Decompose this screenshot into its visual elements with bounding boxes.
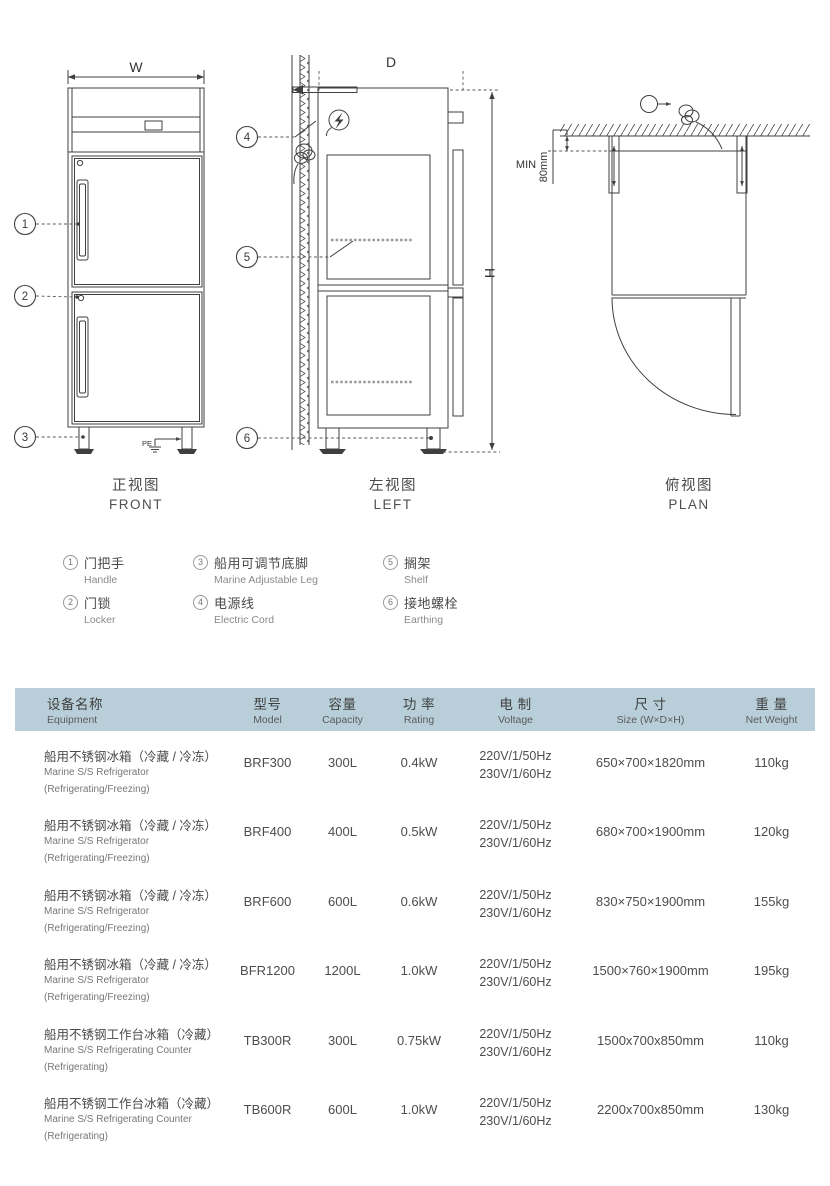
equipment-name-zh: 船用不锈钢工作台冰箱（冷藏） bbox=[44, 1024, 230, 1043]
col-rating-zh: 功 率 bbox=[380, 693, 458, 713]
svg-text:1: 1 bbox=[22, 219, 28, 231]
capacity-cell: 1200L bbox=[305, 954, 380, 1017]
rating-cell: 1.0kW bbox=[380, 1093, 458, 1156]
legend-label-zh: 搁架 bbox=[404, 553, 431, 572]
voltage-cell: 220V/1/50Hz 230V/1/60Hz bbox=[458, 1024, 573, 1087]
capacity-cell: 400L bbox=[305, 815, 380, 878]
model-cell: TB600R bbox=[230, 1093, 305, 1156]
voltage-line-1: 220V/1/50Hz bbox=[458, 1025, 573, 1043]
left-title-zh: 左视图 bbox=[369, 477, 417, 494]
plan-title-zh: 俯视图 bbox=[665, 477, 713, 494]
voltage-line-1: 220V/1/50Hz bbox=[458, 886, 573, 904]
equipment-cell: 船用不锈钢冰箱（冷藏 / 冷冻） Marine S/S Refrigerator… bbox=[15, 815, 230, 878]
door-handle-upper bbox=[77, 180, 88, 260]
legend-label-en: Locker bbox=[84, 614, 116, 626]
col-model: 型号 Model bbox=[230, 693, 305, 726]
col-rating-en: Rating bbox=[380, 714, 458, 726]
rating-cell: 0.4kW bbox=[380, 746, 458, 809]
adjustable-leg bbox=[326, 428, 339, 449]
voltage-cell: 220V/1/50Hz 230V/1/60Hz bbox=[458, 1093, 573, 1156]
table-body: 船用不锈钢冰箱（冷藏 / 冷冻） Marine S/S Refrigerator… bbox=[15, 740, 815, 1156]
control-panel-display bbox=[145, 121, 162, 130]
model-cell: BRF400 bbox=[230, 815, 305, 878]
callout-5: 5 bbox=[237, 241, 354, 268]
size-cell: 1500×760×1900mm bbox=[573, 954, 728, 1017]
legend-number-badge: 5 bbox=[383, 555, 398, 570]
table-row: 船用不锈钢冰箱（冷藏 / 冷冻） Marine S/S Refrigerator… bbox=[15, 948, 815, 1017]
catalog-page: W bbox=[0, 0, 830, 1186]
col-equipment: 设备名称 Equipment bbox=[15, 693, 230, 726]
voltage-line-2: 230V/1/60Hz bbox=[458, 1043, 573, 1061]
col-weight-zh: 重 量 bbox=[728, 693, 815, 713]
equipment-name-sub: (Refrigerating/Freezing) bbox=[44, 992, 230, 1003]
equipment-name-zh: 船用不锈钢冰箱（冷藏 / 冷冻） bbox=[44, 954, 230, 973]
col-equipment-en: Equipment bbox=[47, 714, 230, 726]
capacity-cell: 300L bbox=[305, 1024, 380, 1087]
weight-cell: 110kg bbox=[728, 1024, 815, 1087]
dim-w-label: W bbox=[129, 59, 143, 75]
legend-item: 1 门把手 Handle bbox=[63, 553, 193, 593]
col-size-zh: 尺 寸 bbox=[573, 693, 728, 713]
voltage-cell: 220V/1/50Hz 230V/1/60Hz bbox=[458, 815, 573, 878]
col-size-en: Size (W×D×H) bbox=[573, 714, 728, 726]
voltage-line-1: 220V/1/50Hz bbox=[458, 747, 573, 765]
voltage-line-1: 220V/1/50Hz bbox=[458, 816, 573, 834]
col-weight: 重 量 Net Weight bbox=[728, 693, 815, 726]
col-capacity-zh: 容量 bbox=[305, 693, 380, 713]
legend-label-en: Shelf bbox=[404, 574, 431, 586]
voltage-line-2: 230V/1/60Hz bbox=[458, 765, 573, 783]
rating-cell: 0.6kW bbox=[380, 885, 458, 948]
equipment-name-en: Marine S/S Refrigerator bbox=[44, 767, 230, 778]
dim-d-label: D bbox=[386, 54, 396, 70]
model-cell: BRF600 bbox=[230, 885, 305, 948]
legend-label-en: Handle bbox=[84, 574, 125, 586]
dim-h-label: H bbox=[482, 268, 498, 278]
col-rating: 功 率 Rating bbox=[380, 693, 458, 726]
equipment-name-en: Marine S/S Refrigerating Counter bbox=[44, 1114, 230, 1125]
legend-number-badge: 1 bbox=[63, 555, 78, 570]
col-equipment-zh: 设备名称 bbox=[47, 693, 230, 713]
equipment-cell: 船用不锈钢冰箱（冷藏 / 冷冻） Marine S/S Refrigerator… bbox=[15, 885, 230, 948]
table-row: 船用不锈钢冰箱（冷藏 / 冷冻） Marine S/S Refrigerator… bbox=[15, 879, 815, 948]
dim-min-80mm: MIN 80mm bbox=[516, 130, 567, 184]
col-capacity: 容量 Capacity bbox=[305, 693, 380, 726]
legend-label-zh: 接地螺栓 bbox=[404, 593, 458, 612]
col-voltage-zh: 电 制 bbox=[458, 693, 573, 713]
legend-label-zh: 门把手 bbox=[84, 553, 125, 572]
capacity-cell: 300L bbox=[305, 746, 380, 809]
rating-cell: 1.0kW bbox=[380, 954, 458, 1017]
front-title-zh: 正视图 bbox=[112, 477, 160, 494]
voltage-cell: 220V/1/50Hz 230V/1/60Hz bbox=[458, 746, 573, 809]
technical-drawing: W bbox=[0, 0, 830, 540]
equipment-name-sub: (Refrigerating/Freezing) bbox=[44, 784, 230, 795]
size-cell: 2200x700x850mm bbox=[573, 1093, 728, 1156]
callout-6: 6 bbox=[237, 428, 434, 449]
spec-table: 设备名称 Equipment 型号 Model 容量 Capacity 功 率 … bbox=[15, 688, 815, 1156]
voltage-cell: 220V/1/50Hz 230V/1/60Hz bbox=[458, 885, 573, 948]
equipment-name-en: Marine S/S Refrigerating Counter bbox=[44, 1045, 230, 1056]
callout-1: 1 bbox=[15, 214, 80, 235]
equipment-cell: 船用不锈钢冰箱（冷藏 / 冷冻） Marine S/S Refrigerator… bbox=[15, 746, 230, 809]
equipment-name-zh: 船用不锈钢工作台冰箱（冷藏） bbox=[44, 1093, 230, 1112]
bulkhead-wall bbox=[292, 55, 309, 450]
legend-label-zh: 船用可调节底脚 bbox=[214, 553, 318, 572]
voltage-line-2: 230V/1/60Hz bbox=[458, 834, 573, 852]
col-model-en: Model bbox=[230, 714, 305, 726]
table-row: 船用不锈钢工作台冰箱（冷藏） Marine S/S Refrigerating … bbox=[15, 1087, 815, 1156]
weight-cell: 110kg bbox=[728, 746, 815, 809]
voltage-line-1: 220V/1/50Hz bbox=[458, 1094, 573, 1112]
adjustable-leg bbox=[427, 428, 440, 449]
left-view: D bbox=[237, 54, 501, 512]
equipment-name-sub: (Refrigerating) bbox=[44, 1062, 230, 1073]
equipment-name-sub: (Refrigerating/Freezing) bbox=[44, 853, 230, 864]
legend-item: 5 搁架 Shelf bbox=[383, 553, 458, 593]
voltage-line-1: 220V/1/50Hz bbox=[458, 955, 573, 973]
model-cell: BFR1200 bbox=[230, 954, 305, 1017]
legend-label-zh: 电源线 bbox=[214, 593, 274, 612]
col-model-zh: 型号 bbox=[230, 693, 305, 713]
pe-earthing-symbol: PE bbox=[142, 439, 181, 452]
svg-text:5: 5 bbox=[244, 252, 250, 264]
size-cell: 1500x700x850mm bbox=[573, 1024, 728, 1087]
plan-wall bbox=[560, 124, 810, 136]
adjustable-leg bbox=[182, 427, 192, 449]
callout-3: 3 bbox=[15, 427, 85, 448]
size-cell: 650×700×1820mm bbox=[573, 746, 728, 809]
legend-label-en: Earthing bbox=[404, 614, 458, 626]
weight-cell: 195kg bbox=[728, 954, 815, 1017]
col-capacity-en: Capacity bbox=[305, 714, 380, 726]
svg-text:6: 6 bbox=[244, 433, 250, 445]
legend-item: 6 接地螺栓 Earthing bbox=[383, 593, 458, 633]
weight-cell: 120kg bbox=[728, 815, 815, 878]
equipment-cell: 船用不锈钢工作台冰箱（冷藏） Marine S/S Refrigerating … bbox=[15, 1024, 230, 1087]
voltage-cell: 220V/1/50Hz 230V/1/60Hz bbox=[458, 954, 573, 1017]
equipment-name-en: Marine S/S Refrigerator bbox=[44, 975, 230, 986]
table-row: 船用不锈钢冰箱（冷藏 / 冷冻） Marine S/S Refrigerator… bbox=[15, 740, 815, 809]
size-cell: 680×700×1900mm bbox=[573, 815, 728, 878]
col-size: 尺 寸 Size (W×D×H) bbox=[573, 693, 728, 726]
equipment-name-en: Marine S/S Refrigerator bbox=[44, 836, 230, 847]
svg-text:4: 4 bbox=[244, 132, 251, 144]
legend-label-zh: 门锁 bbox=[84, 593, 116, 612]
callout-2: 2 bbox=[15, 286, 79, 307]
svg-text:2: 2 bbox=[22, 291, 28, 303]
plan-title-en: PLAN bbox=[668, 497, 709, 512]
equipment-name-en: Marine S/S Refrigerator bbox=[44, 906, 230, 917]
model-cell: TB300R bbox=[230, 1024, 305, 1087]
legend-label-en: Marine Adjustable Leg bbox=[214, 574, 318, 586]
door-lock-lower bbox=[78, 295, 83, 300]
weight-cell: 130kg bbox=[728, 1093, 815, 1156]
front-view: W bbox=[15, 59, 205, 512]
equipment-name-sub: (Refrigerating/Freezing) bbox=[44, 923, 230, 934]
hinge-left bbox=[609, 136, 619, 193]
equipment-name-sub: (Refrigerating) bbox=[44, 1131, 230, 1142]
rating-cell: 0.75kW bbox=[380, 1024, 458, 1087]
capacity-cell: 600L bbox=[305, 1093, 380, 1156]
min-label: MIN bbox=[516, 159, 536, 171]
weight-cell: 155kg bbox=[728, 885, 815, 948]
legend-item: 2 门锁 Locker bbox=[63, 593, 193, 633]
plan-view: MIN 80mm 俯视图 PLAN bbox=[516, 96, 810, 513]
voltage-line-2: 230V/1/60Hz bbox=[458, 1112, 573, 1130]
front-title-en: FRONT bbox=[109, 497, 163, 512]
legend-item: 3 船用可调节底脚 Marine Adjustable Leg bbox=[193, 553, 383, 593]
equipment-name-zh: 船用不锈钢冰箱（冷藏 / 冷冻） bbox=[44, 815, 230, 834]
legend-number-badge: 6 bbox=[383, 595, 398, 610]
equipment-name-zh: 船用不锈钢冰箱（冷藏 / 冷冻） bbox=[44, 885, 230, 904]
electric-bolt-icon bbox=[326, 110, 349, 136]
legend-number-badge: 4 bbox=[193, 595, 208, 610]
min-value-label: 80mm bbox=[538, 152, 550, 183]
rating-cell: 0.5kW bbox=[380, 815, 458, 878]
equipment-cell: 船用不锈钢工作台冰箱（冷藏） Marine S/S Refrigerating … bbox=[15, 1093, 230, 1156]
equipment-name-zh: 船用不锈钢冰箱（冷藏 / 冷冻） bbox=[44, 746, 230, 765]
size-cell: 830×750×1900mm bbox=[573, 885, 728, 948]
dim-h: H bbox=[443, 90, 500, 452]
capacity-cell: 600L bbox=[305, 885, 380, 948]
legend-number-badge: 3 bbox=[193, 555, 208, 570]
col-voltage-en: Voltage bbox=[458, 714, 573, 726]
col-voltage: 电 制 Voltage bbox=[458, 693, 573, 726]
legend: 1 门把手 Handle 2 门锁 Locker 3 船用可调节底脚 Marin… bbox=[63, 553, 458, 633]
legend-number-badge: 2 bbox=[63, 595, 78, 610]
legend-label-en: Electric Cord bbox=[214, 614, 274, 626]
plan-power-cord bbox=[641, 96, 723, 150]
col-weight-en: Net Weight bbox=[728, 714, 815, 726]
left-title-en: LEFT bbox=[373, 497, 412, 512]
legend-item: 4 电源线 Electric Cord bbox=[193, 593, 383, 633]
table-header: 设备名称 Equipment 型号 Model 容量 Capacity 功 率 … bbox=[15, 688, 815, 731]
table-row: 船用不锈钢冰箱（冷藏 / 冷冻） Marine S/S Refrigerator… bbox=[15, 809, 815, 878]
door-lock-upper bbox=[77, 160, 82, 165]
equipment-cell: 船用不锈钢冰箱（冷藏 / 冷冻） Marine S/S Refrigerator… bbox=[15, 954, 230, 1017]
model-cell: BRF300 bbox=[230, 746, 305, 809]
door-handle-lower bbox=[77, 317, 88, 397]
table-row: 船用不锈钢工作台冰箱（冷藏） Marine S/S Refrigerating … bbox=[15, 1018, 815, 1087]
svg-text:3: 3 bbox=[22, 432, 28, 444]
voltage-line-2: 230V/1/60Hz bbox=[458, 904, 573, 922]
door-swing bbox=[612, 298, 740, 417]
voltage-line-2: 230V/1/60Hz bbox=[458, 973, 573, 991]
